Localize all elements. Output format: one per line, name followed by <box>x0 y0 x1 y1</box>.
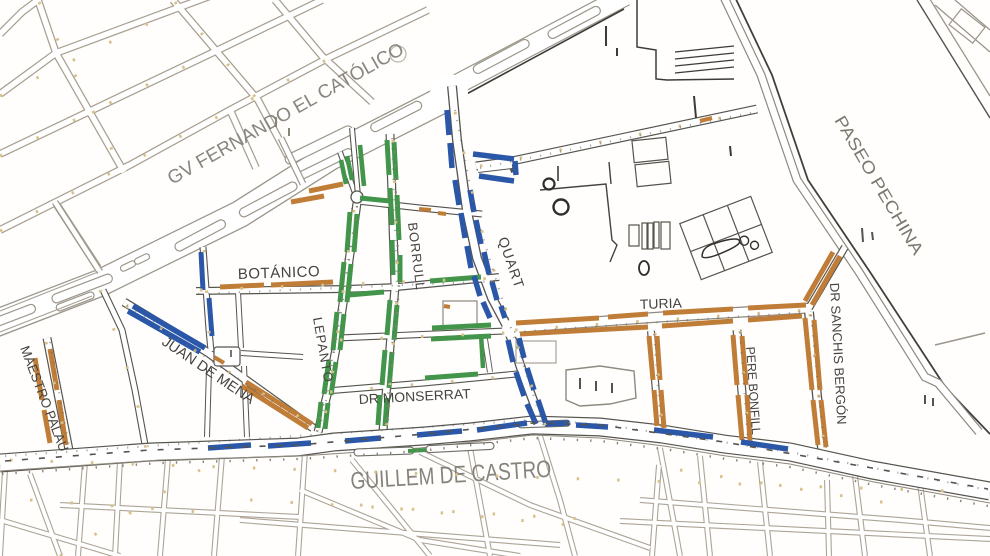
svg-text:BOTÁNICO: BOTÁNICO <box>238 263 321 283</box>
svg-text:TURIA: TURIA <box>640 296 682 312</box>
